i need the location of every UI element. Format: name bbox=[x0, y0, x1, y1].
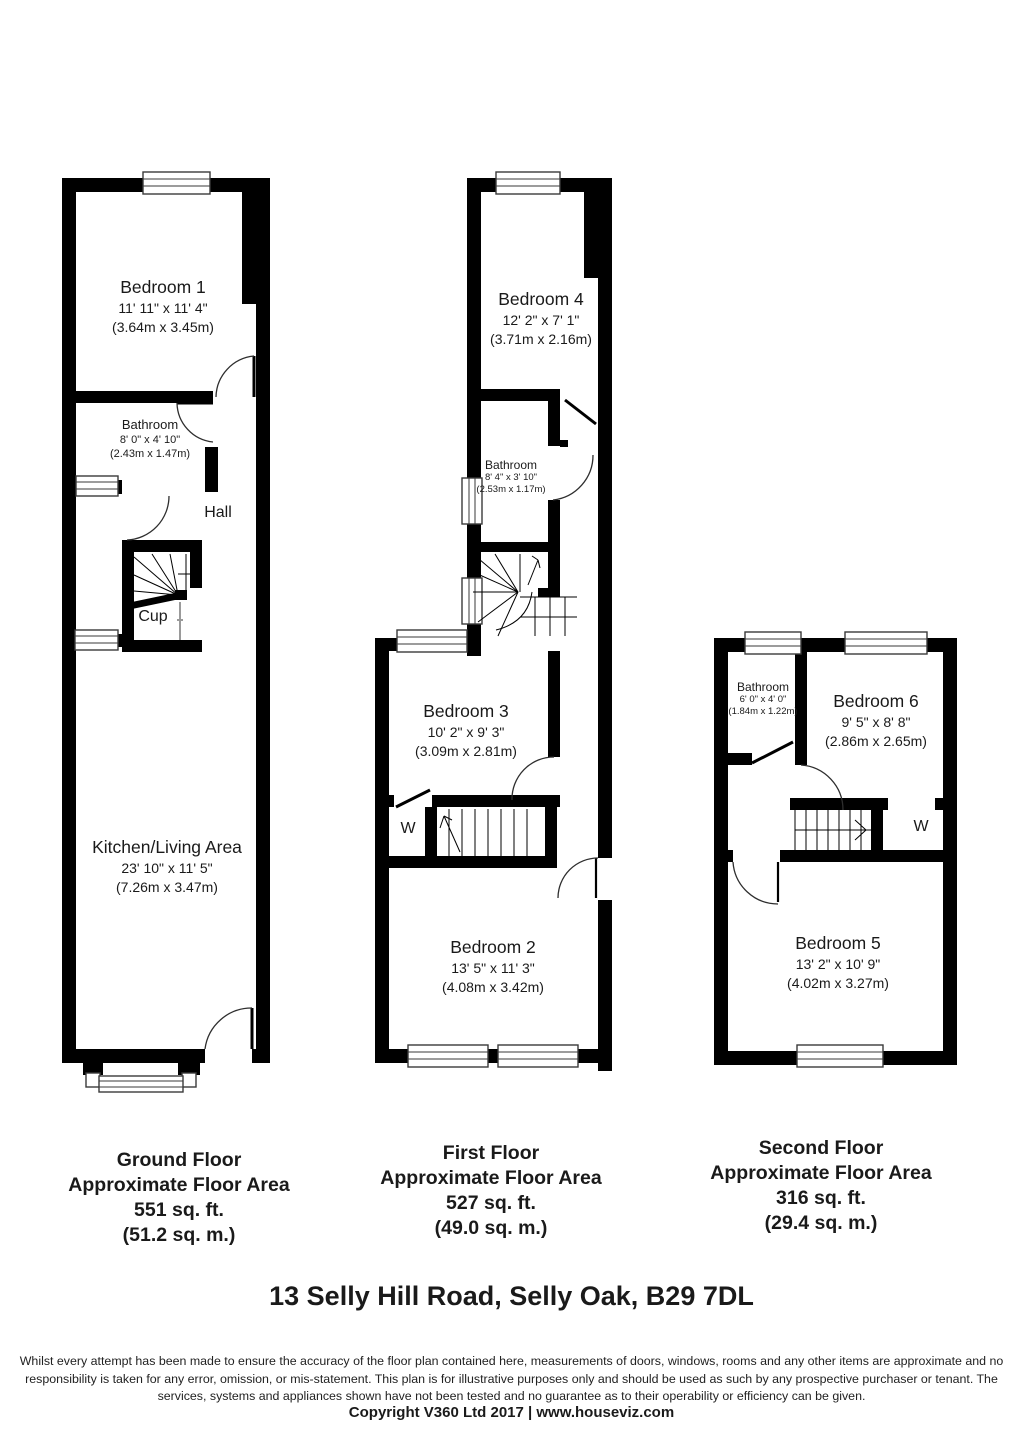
disclaimer-text: Whilst every attempt has been made to en… bbox=[0, 1353, 1023, 1406]
door-swing-icon bbox=[205, 1008, 252, 1049]
window-icon bbox=[397, 630, 467, 652]
door-swing-icon bbox=[733, 862, 778, 904]
room-dimensions-imperial: 8' 0" x 4' 10" bbox=[110, 433, 190, 447]
caption-area-m: (49.0 sq. m.) bbox=[380, 1216, 601, 1241]
room-dimensions-imperial: 8' 4" x 3' 10" bbox=[476, 472, 545, 484]
caption-title: Second Floor bbox=[710, 1136, 931, 1161]
caption-ground-floor: Ground Floor Approximate Floor Area 551 … bbox=[68, 1148, 289, 1248]
room-dimensions-imperial: 13' 5" x 11' 3" bbox=[442, 959, 544, 978]
room-dimensions-imperial: 6' 0" x 4' 0" bbox=[728, 694, 797, 706]
room-label-bedroom-3: Bedroom 3 10' 2" x 9' 3" (3.09m x 2.81m) bbox=[415, 700, 517, 760]
room-dimensions-metric: (3.71m x 2.16m) bbox=[490, 330, 592, 349]
caption-title: Ground Floor bbox=[68, 1148, 289, 1173]
caption-area-m: (51.2 sq. m.) bbox=[68, 1223, 289, 1248]
room-label-kitchen-living: Kitchen/Living Area 23' 10" x 11' 5" (7.… bbox=[92, 836, 242, 896]
window-icon bbox=[462, 578, 482, 624]
room-dimensions-metric: (1.84m x 1.22m) bbox=[728, 706, 797, 718]
room-dimensions-imperial: 12' 2" x 7' 1" bbox=[490, 311, 592, 330]
room-label-bedroom-4: Bedroom 4 12' 2" x 7' 1" (3.71m x 2.16m) bbox=[490, 288, 592, 348]
window-icon bbox=[498, 1045, 578, 1067]
disclaimer-line-1: Whilst every attempt has been made to en… bbox=[0, 1353, 1023, 1371]
room-dimensions-imperial: 13' 2" x 10' 9" bbox=[787, 955, 889, 974]
room-dimensions-metric: (7.26m x 3.47m) bbox=[92, 878, 242, 897]
door-swing-icon bbox=[396, 790, 430, 807]
room-name: Bedroom 4 bbox=[490, 288, 592, 311]
room-label-bathroom-ground: Bathroom 8' 0" x 4' 10" (2.43m x 1.47m) bbox=[110, 417, 190, 461]
room-dimensions-imperial: 9' 5" x 8' 8" bbox=[825, 713, 927, 732]
disclaimer-line-3: services, systems and appliances shown h… bbox=[0, 1388, 1023, 1406]
caption-subtitle: Approximate Floor Area bbox=[68, 1173, 289, 1198]
caption-subtitle: Approximate Floor Area bbox=[710, 1161, 931, 1186]
stairs-icon bbox=[440, 809, 527, 856]
stairs-icon bbox=[795, 810, 871, 850]
room-dimensions-metric: (3.09m x 2.81m) bbox=[415, 742, 517, 761]
caption-first-floor: First Floor Approximate Floor Area 527 s… bbox=[380, 1141, 601, 1241]
room-label-bedroom-6: Bedroom 6 9' 5" x 8' 8" (2.86m x 2.65m) bbox=[825, 690, 927, 750]
caption-area-m: (29.4 sq. m.) bbox=[710, 1211, 931, 1236]
window-icon bbox=[75, 630, 118, 650]
room-label-wardrobe-first: W bbox=[400, 820, 415, 838]
disclaimer-line-2: responsibility is taken for any error, o… bbox=[0, 1371, 1023, 1389]
door-swing-icon bbox=[553, 455, 593, 500]
room-dimensions-metric: (4.08m x 3.42m) bbox=[442, 978, 544, 997]
room-dimensions-metric: (2.86m x 2.65m) bbox=[825, 732, 927, 751]
door-swing-icon bbox=[752, 742, 793, 763]
caption-title: First Floor bbox=[380, 1141, 601, 1166]
door-swing-icon bbox=[558, 858, 598, 898]
room-dimensions-metric: (4.02m x 3.27m) bbox=[787, 974, 889, 993]
window-icon bbox=[76, 476, 118, 496]
caption-second-floor: Second Floor Approximate Floor Area 316 … bbox=[710, 1136, 931, 1236]
door-swing-icon bbox=[127, 496, 169, 540]
floorplan-page: Bedroom 1 11' 11" x 11' 4" (3.64m x 3.45… bbox=[0, 0, 1023, 1449]
room-dimensions-metric: (2.43m x 1.47m) bbox=[110, 447, 190, 461]
room-dimensions-imperial: 10' 2" x 9' 3" bbox=[415, 723, 517, 742]
room-name: Bathroom bbox=[728, 680, 797, 694]
room-dimensions-imperial: 23' 10" x 11' 5" bbox=[92, 859, 242, 878]
door-swing-icon bbox=[216, 356, 254, 397]
room-label-bathroom-first: Bathroom 8' 4" x 3' 10" (2.53m x 1.17m) bbox=[476, 458, 545, 496]
window-icon bbox=[143, 172, 210, 194]
room-label-cupboard: Cup bbox=[138, 608, 167, 626]
door-swing-icon bbox=[565, 400, 596, 424]
door-swing-icon bbox=[512, 757, 554, 800]
room-name: Bedroom 3 bbox=[415, 700, 517, 723]
bay-window-icon bbox=[86, 1073, 196, 1092]
property-address: 13 Selly Hill Road, Selly Oak, B29 7DL bbox=[0, 1281, 1023, 1312]
window-icon bbox=[745, 632, 801, 654]
room-label-bedroom-2: Bedroom 2 13' 5" x 11' 3" (4.08m x 3.42m… bbox=[442, 936, 544, 996]
room-dimensions-metric: (3.64m x 3.45m) bbox=[112, 318, 214, 337]
room-name: Bedroom 6 bbox=[825, 690, 927, 713]
room-label-hall: Hall bbox=[204, 504, 232, 522]
room-dimensions-metric: (2.53m x 1.17m) bbox=[476, 484, 545, 496]
room-label-bedroom-5: Bedroom 5 13' 2" x 10' 9" (4.02m x 3.27m… bbox=[787, 932, 889, 992]
room-name: Bedroom 5 bbox=[787, 932, 889, 955]
room-label-bathroom-second: Bathroom 6' 0" x 4' 0" (1.84m x 1.22m) bbox=[728, 680, 797, 718]
caption-area-ft: 316 sq. ft. bbox=[710, 1186, 931, 1211]
window-icon bbox=[408, 1045, 488, 1067]
copyright-text: Copyright V360 Ltd 2017 | www.houseviz.c… bbox=[0, 1404, 1023, 1421]
room-name: Bathroom bbox=[476, 458, 545, 472]
room-name: Bedroom 2 bbox=[442, 936, 544, 959]
room-name: Bedroom 1 bbox=[112, 276, 214, 299]
caption-area-ft: 551 sq. ft. bbox=[68, 1198, 289, 1223]
room-name: Bathroom bbox=[110, 417, 190, 433]
window-icon bbox=[797, 1045, 883, 1067]
caption-area-ft: 527 sq. ft. bbox=[380, 1191, 601, 1216]
window-icon bbox=[496, 172, 560, 194]
window-icon bbox=[845, 632, 927, 654]
room-name: Kitchen/Living Area bbox=[92, 836, 242, 859]
caption-subtitle: Approximate Floor Area bbox=[380, 1166, 601, 1191]
stairs-icon bbox=[473, 554, 577, 636]
room-label-bedroom-1: Bedroom 1 11' 11" x 11' 4" (3.64m x 3.45… bbox=[112, 276, 214, 336]
room-dimensions-imperial: 11' 11" x 11' 4" bbox=[112, 299, 214, 318]
room-label-wardrobe-second: W bbox=[913, 818, 928, 836]
